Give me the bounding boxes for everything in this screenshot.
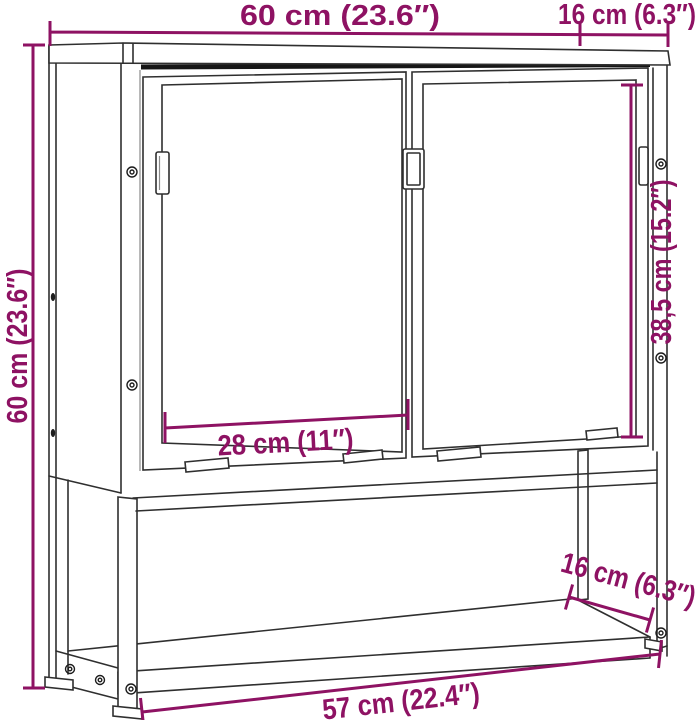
left-door bbox=[143, 72, 406, 470]
screw-icon bbox=[66, 665, 75, 674]
front-left-leg-bar bbox=[118, 497, 137, 711]
hinge-pin-icon bbox=[51, 429, 55, 437]
dim-mirror-height: 38,5 cm (15.2″) bbox=[621, 85, 678, 437]
screw-icon bbox=[96, 676, 105, 685]
dim-mirror-height-label: 38,5 cm (15.2″) bbox=[646, 180, 678, 345]
top-panel bbox=[49, 43, 670, 67]
right-door-handle-body bbox=[639, 147, 648, 185]
hinge-pin-icon bbox=[51, 293, 55, 301]
shelf-right-end-edge bbox=[578, 600, 650, 637]
screw-icon bbox=[656, 353, 666, 363]
center-door-handle bbox=[403, 149, 424, 189]
left-bottom-apron-top bbox=[56, 651, 118, 668]
screw-icon bbox=[127, 380, 137, 390]
dim-overall-depth-label: 16 cm (6.3″) bbox=[558, 0, 696, 31]
shelf-back-top-edge bbox=[68, 598, 580, 651]
screw-icon bbox=[656, 159, 666, 169]
dim-overall-depth: 16 cm (6.3″) bbox=[558, 0, 696, 31]
mirror-cabinet-drawing: 60 cm (23.6″) 16 cm (6.3″) 60 cm (23.6″)… bbox=[0, 0, 697, 720]
dim-shelf-width: 57 cm (22.4″) bbox=[141, 640, 662, 720]
dim-overall-height-label: 60 cm (23.6″) bbox=[2, 269, 34, 424]
screw-icon bbox=[127, 167, 137, 177]
top-panel-face bbox=[49, 43, 670, 65]
dim-overall-height: 60 cm (23.6″) bbox=[2, 45, 45, 688]
left-door-handle-body bbox=[156, 152, 169, 194]
shelf-front-top-edge bbox=[118, 637, 650, 672]
door-bottom-clip-4 bbox=[586, 428, 618, 440]
product-dimension-diagram: 60 cm (23.6″) 16 cm (6.3″) 60 cm (23.6″)… bbox=[0, 0, 697, 720]
dim-shelf-depth-label: 16 cm (6.3″) bbox=[558, 547, 697, 614]
mirror-doors bbox=[140, 68, 648, 472]
side-panel-bottom-edge bbox=[49, 476, 121, 493]
dim-overall-width-label: 60 cm (23.6″) bbox=[240, 0, 440, 32]
rear-left-foot bbox=[45, 677, 73, 690]
left-door-handle bbox=[156, 152, 169, 194]
cabinet bbox=[45, 43, 670, 719]
bottom-shelf bbox=[68, 598, 650, 694]
right-door bbox=[412, 68, 648, 457]
right-door-handle bbox=[639, 147, 648, 185]
center-door-handle-inner bbox=[407, 153, 420, 185]
front-left-foot bbox=[113, 706, 142, 719]
